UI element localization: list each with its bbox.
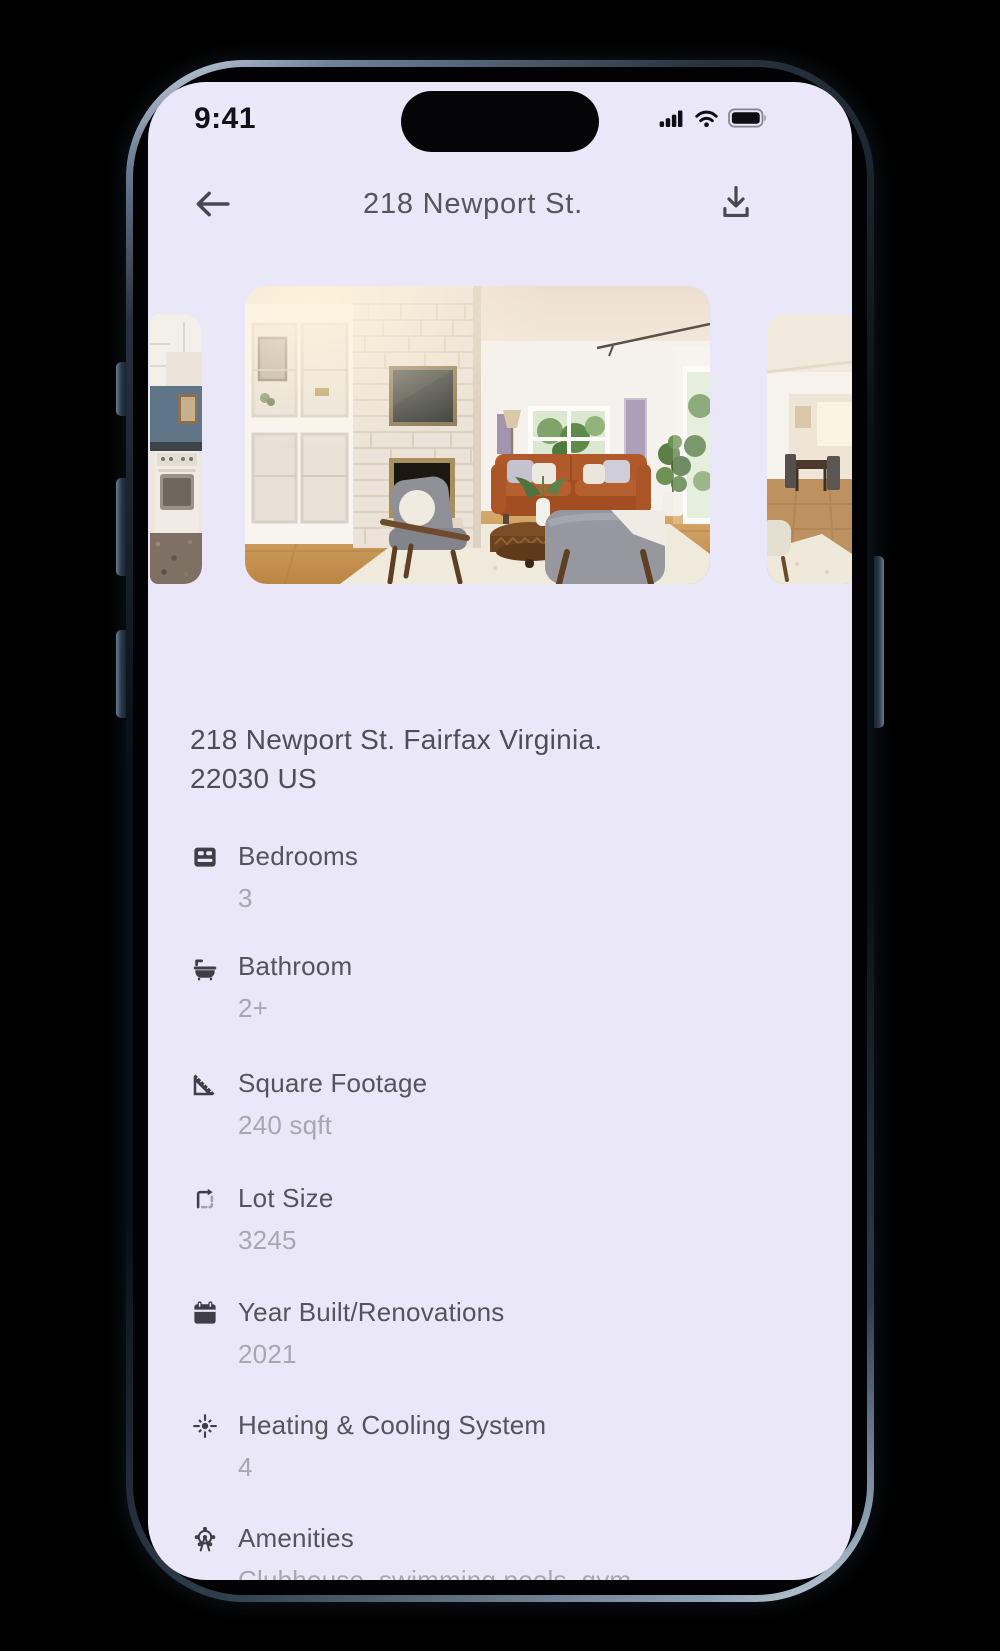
detail-value: 4 xyxy=(238,1452,810,1483)
detail-row-square-footage: Square Footage 240 sqft xyxy=(190,1068,810,1141)
detail-value: Clubhouse, swimming pools, gym xyxy=(238,1565,810,1580)
address-line-1: 218 Newport St. Fairfax Virginia. xyxy=(190,720,810,759)
detail-label: Bathroom xyxy=(238,951,352,982)
calendar-icon xyxy=(190,1298,220,1328)
detail-row-year-built: Year Built/Renovations 2021 xyxy=(190,1297,810,1370)
detail-label: Year Built/Renovations xyxy=(238,1297,505,1328)
detail-label: Lot Size xyxy=(238,1183,334,1214)
carousel-prev-image[interactable] xyxy=(150,314,202,584)
detail-label: Heating & Cooling System xyxy=(238,1410,546,1441)
detail-value: 3245 xyxy=(238,1225,810,1256)
power-button xyxy=(873,556,884,728)
wifi-icon xyxy=(694,109,719,133)
detail-value: 3 xyxy=(238,883,810,914)
detail-row-lot-size: Lot Size 3245 xyxy=(190,1183,810,1256)
cellular-signal-icon xyxy=(659,109,685,133)
address-line-2: 22030 US xyxy=(190,759,810,798)
dynamic-island xyxy=(401,91,599,152)
detail-row-heating-cooling: Heating & Cooling System 4 xyxy=(190,1410,810,1483)
property-address: 218 Newport St. Fairfax Virginia. 22030 … xyxy=(190,720,810,798)
detail-row-bathroom: Bathroom 2+ xyxy=(190,951,810,1024)
phone-mockup: 9:41 xyxy=(0,0,1000,1651)
detail-value: 240 sqft xyxy=(238,1110,810,1141)
download-button[interactable] xyxy=(718,182,754,224)
detail-value: 2+ xyxy=(238,993,810,1024)
detail-label: Square Footage xyxy=(238,1068,427,1099)
detail-label: Bedrooms xyxy=(238,841,358,872)
carousel-next-image[interactable] xyxy=(767,314,852,584)
battery-icon xyxy=(728,108,768,133)
carousel-main-image[interactable] xyxy=(245,286,710,584)
app-screen: 9:41 xyxy=(148,82,852,1580)
status-time: 9:41 xyxy=(194,102,314,136)
bathtub-icon xyxy=(190,952,220,982)
attractions-icon xyxy=(190,1524,220,1554)
lot-size-icon xyxy=(190,1184,220,1214)
detail-label: Amenities xyxy=(238,1523,354,1554)
square-foot-icon xyxy=(190,1069,220,1099)
bed-icon xyxy=(190,842,220,872)
phone-bezel: 9:41 xyxy=(133,67,867,1595)
status-bar-icons xyxy=(659,108,768,133)
phone-frame: 9:41 xyxy=(126,60,874,1602)
detail-row-bedrooms: Bedrooms 3 xyxy=(190,841,810,914)
sun-icon xyxy=(190,1411,220,1441)
detail-value: 2021 xyxy=(238,1339,810,1370)
detail-row-amenities: Amenities Clubhouse, swimming pools, gym xyxy=(190,1523,810,1580)
page-title: 218 Newport St. xyxy=(148,188,798,221)
